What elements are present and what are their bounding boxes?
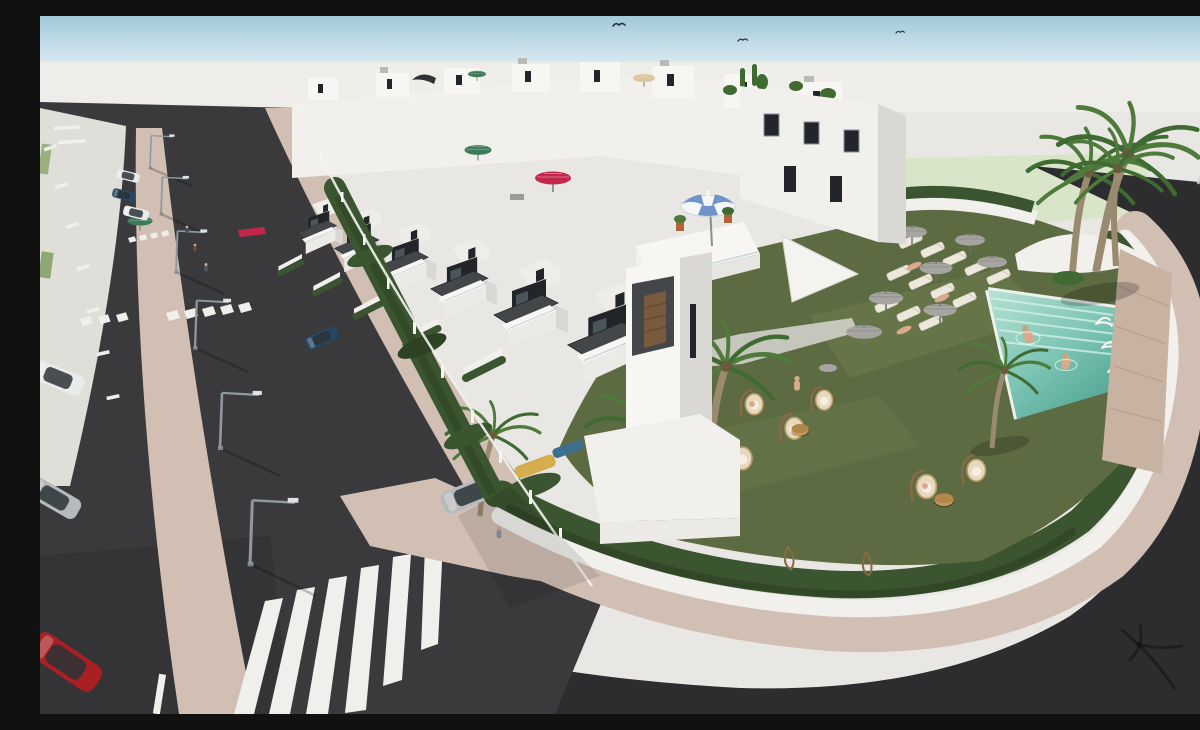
architectural-render: Aerial 3D rendering of a new-build devel… bbox=[40, 16, 1200, 714]
sky bbox=[40, 16, 1200, 66]
window-slit bbox=[690, 304, 696, 358]
seated-person bbox=[922, 483, 928, 489]
render-canvas: Aerial 3D rendering of a new-build devel… bbox=[40, 16, 1200, 714]
standing-person bbox=[794, 376, 800, 391]
seated-person bbox=[749, 401, 755, 407]
folded-umbrella bbox=[819, 364, 837, 372]
terrace-furniture bbox=[510, 194, 524, 200]
